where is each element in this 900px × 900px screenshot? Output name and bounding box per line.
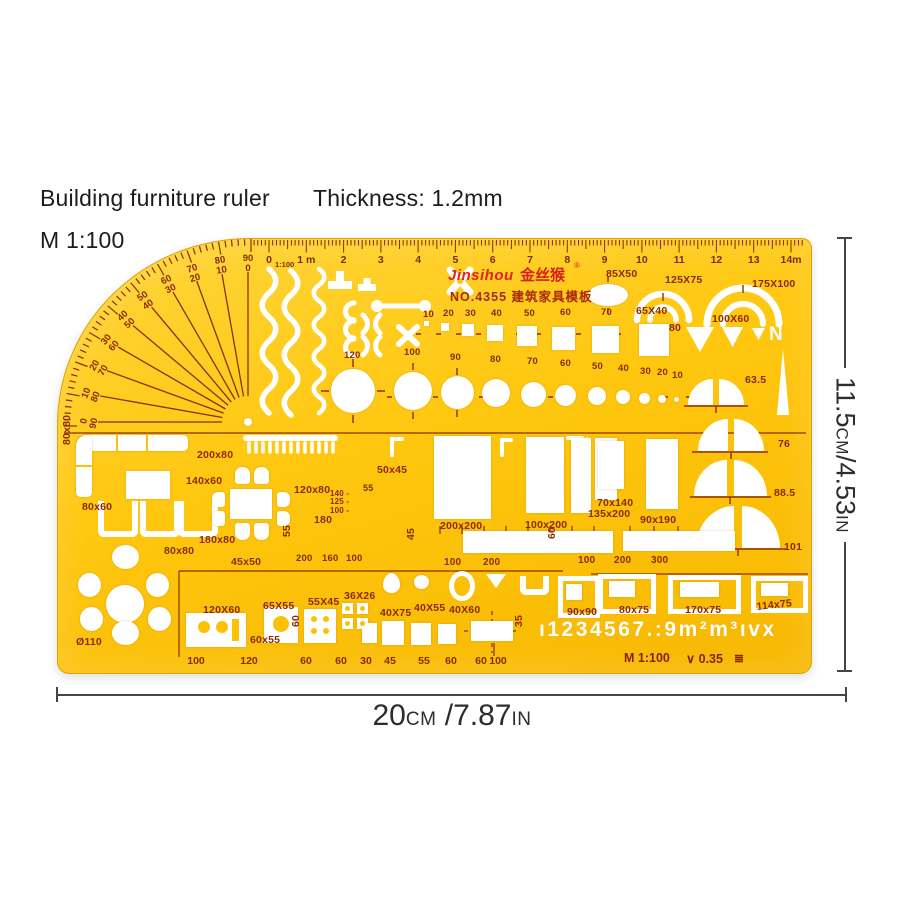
size-label: 135x200 bbox=[588, 509, 630, 520]
size-label: 200 bbox=[296, 554, 312, 564]
size-label: 70 bbox=[527, 357, 538, 367]
height-value: 11.5 bbox=[831, 377, 861, 428]
size-label: 50 bbox=[592, 362, 603, 372]
template-cutout bbox=[277, 492, 290, 507]
size-label: 30 bbox=[465, 309, 476, 319]
template-cutout bbox=[212, 492, 225, 507]
template-cutout bbox=[438, 624, 456, 644]
template-cutout bbox=[434, 436, 491, 519]
size-label: 300 bbox=[651, 556, 668, 566]
bottom-scale-number: 100 bbox=[187, 656, 205, 667]
size-label: 70 bbox=[601, 308, 612, 318]
template-hole-detail bbox=[323, 628, 329, 634]
size-label: 55 bbox=[282, 525, 293, 537]
template-cutout bbox=[463, 531, 613, 553]
bottom-scale-number: 60 bbox=[335, 656, 347, 667]
size-label: 30 bbox=[640, 367, 651, 377]
template-hole-detail bbox=[360, 606, 365, 611]
model-number: NO.4355 建筑家具模板 bbox=[450, 286, 593, 305]
template-cutout bbox=[441, 376, 474, 409]
template-cutout bbox=[254, 467, 269, 484]
size-label: 40X75 bbox=[380, 608, 411, 619]
template-cutout bbox=[126, 471, 170, 499]
template-cutout bbox=[76, 435, 188, 451]
product-title: Building furniture ruler bbox=[40, 185, 270, 212]
size-label: 88.5 bbox=[774, 488, 795, 499]
size-label: 200 bbox=[483, 558, 500, 568]
size-label: 175X100 bbox=[752, 279, 795, 290]
size-label: 63.5 bbox=[745, 375, 766, 386]
width-dimension-label: 20cm /7.87in bbox=[373, 699, 532, 733]
size-label: 50x45 bbox=[377, 465, 407, 476]
template-hole-detail bbox=[76, 465, 92, 467]
template-hole-detail bbox=[273, 616, 289, 632]
stencil-characters: ı1234567.:9m²m³ıvx bbox=[539, 618, 777, 642]
template-cutout bbox=[106, 585, 144, 623]
height-dimension-label: 11.5cm/4.53in bbox=[830, 377, 861, 533]
ruler-number: 5 bbox=[453, 255, 459, 266]
template-cutout bbox=[639, 393, 650, 404]
size-label: 100 bbox=[404, 348, 420, 358]
template-cutout bbox=[623, 531, 735, 551]
template-cutout bbox=[441, 323, 449, 331]
ruler-number: 3 bbox=[378, 255, 384, 266]
bottom-scale-number: 45 bbox=[384, 656, 396, 667]
template-hole-detail bbox=[345, 606, 350, 611]
template-cutout bbox=[235, 467, 250, 484]
template-cutout bbox=[520, 576, 549, 595]
template-cutout bbox=[616, 390, 630, 404]
size-label: 20 bbox=[443, 309, 454, 319]
template-cutout bbox=[212, 511, 225, 526]
size-label: 60 bbox=[547, 527, 558, 539]
height-dim-cap-bottom bbox=[837, 670, 852, 672]
size-label: 100 bbox=[346, 554, 362, 564]
size-label: 125X75 bbox=[665, 275, 702, 286]
ruler-number: 11 bbox=[674, 255, 685, 266]
ruler-ratio: 1:100 bbox=[275, 260, 294, 269]
size-label: 60 bbox=[560, 359, 571, 369]
bottom-scale-number: 55 bbox=[418, 656, 430, 667]
bottom-scale-number: 60 bbox=[445, 656, 457, 667]
product-photo: Building furniture ruler Thickness: 1.2m… bbox=[0, 0, 900, 900]
template-hole-detail bbox=[232, 619, 239, 641]
size-label: 200x200 bbox=[440, 521, 482, 532]
size-label: 55 bbox=[363, 484, 373, 493]
size-label: 125 - bbox=[330, 498, 349, 506]
template-cutout bbox=[487, 325, 503, 341]
template-cutout bbox=[521, 382, 546, 407]
template-cutout bbox=[658, 395, 666, 403]
ruler-number: 13 bbox=[748, 255, 760, 266]
size-label: 90 bbox=[450, 353, 461, 363]
size-label: 55X45 bbox=[308, 597, 339, 608]
size-label: 65X40 bbox=[636, 306, 667, 317]
template-cutout bbox=[639, 324, 669, 356]
template-cutout bbox=[588, 284, 628, 306]
size-label: 60x55 bbox=[250, 635, 280, 646]
template-hole-detail bbox=[360, 621, 365, 626]
template-cutout bbox=[331, 369, 375, 413]
template-cutout bbox=[78, 573, 101, 597]
template-cutout bbox=[552, 327, 575, 350]
size-label: 80x80 bbox=[62, 415, 73, 445]
size-label: 101 bbox=[784, 542, 802, 553]
template-cutout bbox=[80, 607, 103, 631]
template-cutout bbox=[449, 571, 475, 601]
template-cutout bbox=[588, 387, 606, 405]
template-cutout bbox=[146, 573, 169, 597]
size-label: 40 bbox=[491, 309, 502, 319]
size-label: 85X50 bbox=[606, 269, 637, 280]
template-cutout bbox=[112, 545, 139, 569]
size-label: 80x80 bbox=[164, 546, 194, 557]
width-value: 20 bbox=[373, 699, 406, 732]
template-cutout bbox=[277, 511, 290, 526]
template-cutout bbox=[112, 621, 139, 645]
template-cutout bbox=[555, 385, 576, 406]
template-cutout bbox=[414, 575, 429, 589]
size-label: 200x80 bbox=[197, 450, 233, 461]
template-hole-detail bbox=[146, 435, 148, 451]
pen-width-mark: ∨ 0.35 bbox=[686, 651, 723, 666]
template-cutout bbox=[526, 437, 564, 513]
template-cutout bbox=[609, 581, 635, 597]
width-dimension-line bbox=[57, 694, 846, 696]
template-cutout bbox=[462, 324, 474, 336]
protractor-degree-pair: 900 bbox=[237, 254, 259, 275]
template-cutout bbox=[482, 379, 510, 407]
template-cutout bbox=[394, 372, 432, 410]
thickness-label: Thickness: 1.2mm bbox=[313, 185, 503, 212]
bottom-scale-number: 120 bbox=[240, 656, 258, 667]
size-label: 80 bbox=[490, 355, 501, 365]
width-dim-cap-left bbox=[56, 687, 58, 702]
ruler-number: 10 bbox=[636, 255, 648, 266]
height-value-in: /4.53 bbox=[831, 455, 861, 515]
size-label: 120 bbox=[344, 351, 360, 361]
bottom-scale-number: 100 bbox=[489, 656, 507, 667]
template-cutout bbox=[471, 621, 513, 641]
size-label: 100 bbox=[578, 556, 595, 566]
bottom-scale-number: 60 bbox=[475, 656, 487, 667]
template-cutout bbox=[362, 623, 377, 643]
template-hole-detail bbox=[116, 435, 118, 451]
template-cutout bbox=[411, 623, 431, 645]
ruler-number: 1 m bbox=[297, 255, 315, 266]
size-label: 65X55 bbox=[263, 601, 294, 612]
template-hole-detail bbox=[345, 621, 350, 626]
template-cutout bbox=[680, 582, 719, 597]
template-cutout bbox=[140, 501, 180, 537]
size-label: 80x60 bbox=[82, 502, 112, 513]
template-hole-detail bbox=[323, 616, 329, 622]
protractor-degree-pair: 8010 bbox=[208, 255, 233, 279]
size-label: 36X26 bbox=[344, 591, 375, 602]
size-label: 76 bbox=[778, 439, 790, 450]
size-label: 100 - bbox=[330, 507, 349, 515]
template-cutout bbox=[148, 607, 171, 631]
width-unit-in: in bbox=[512, 709, 532, 730]
size-label: 40X55 bbox=[414, 603, 445, 614]
size-label: 120X60 bbox=[203, 605, 240, 616]
template-cutout bbox=[566, 584, 582, 600]
size-label: 60 bbox=[291, 615, 302, 627]
height-dim-cap-top bbox=[837, 237, 852, 239]
ruler-number: 6 bbox=[490, 255, 496, 266]
size-label: 120x80 bbox=[294, 485, 330, 496]
size-label: 200 bbox=[614, 556, 631, 566]
size-label: 100 bbox=[444, 558, 461, 568]
template-cutout bbox=[235, 523, 250, 540]
size-label: 45x50 bbox=[231, 557, 261, 568]
size-label: 70x140 bbox=[597, 498, 633, 509]
size-label: 180 bbox=[314, 515, 332, 526]
template-cutout bbox=[761, 583, 788, 596]
north-letter: N bbox=[769, 324, 783, 346]
template-cutout bbox=[517, 326, 537, 346]
width-unit: cm bbox=[406, 709, 437, 730]
bottom-scale-number: 60 bbox=[300, 656, 312, 667]
height-unit-in: in bbox=[833, 515, 852, 533]
size-label: 80x75 bbox=[619, 605, 649, 616]
paper-icon: ≣ bbox=[734, 651, 744, 665]
template-cutout bbox=[424, 321, 429, 326]
size-label: 40 bbox=[618, 364, 629, 374]
ruler-number: 2 bbox=[341, 255, 347, 266]
template-hole-detail bbox=[311, 628, 317, 634]
size-label: 35 bbox=[514, 615, 525, 627]
brand-name-cn: 金丝猴 bbox=[520, 264, 565, 285]
registered-mark: ® bbox=[574, 261, 580, 270]
height-dimension-line-bottom bbox=[844, 542, 846, 672]
template-cutout bbox=[383, 573, 400, 593]
size-label: 60 bbox=[560, 308, 571, 318]
height-unit: cm bbox=[833, 428, 852, 455]
height-dimension-line-top bbox=[844, 238, 846, 368]
size-label: 10 bbox=[672, 371, 683, 381]
bottom-scale-number: 30 bbox=[360, 656, 372, 667]
template-cutout bbox=[646, 439, 678, 509]
ruler-number: 8 bbox=[564, 255, 570, 266]
template-cutout bbox=[598, 441, 624, 489]
size-label: 90x90 bbox=[567, 607, 597, 618]
size-label: 160 bbox=[322, 554, 338, 564]
size-label: 50 bbox=[524, 309, 535, 319]
template-hole-detail bbox=[216, 621, 228, 633]
ruler-number: 0 bbox=[266, 255, 272, 266]
template-cutout bbox=[674, 397, 679, 402]
template-hole-detail bbox=[198, 621, 210, 633]
template-cutout bbox=[244, 418, 252, 426]
size-label: 40X60 bbox=[449, 605, 480, 616]
size-label: 170x75 bbox=[685, 605, 721, 616]
brand-name: Jinsihou bbox=[448, 267, 514, 284]
size-label: 20 bbox=[657, 368, 668, 378]
size-label: Ø110 bbox=[76, 637, 102, 648]
width-value-in: /7.87 bbox=[436, 699, 511, 732]
footer-scale: M 1:100 bbox=[624, 651, 670, 665]
ruler-number: 9 bbox=[602, 255, 608, 266]
template-cutout bbox=[304, 609, 336, 643]
ruler-number: 7 bbox=[527, 255, 533, 266]
template-cutout bbox=[382, 621, 404, 645]
size-label: 100X60 bbox=[712, 314, 749, 325]
width-dim-cap-right bbox=[845, 687, 847, 702]
ruler-number: 4 bbox=[415, 255, 421, 266]
ruler-number: 14m bbox=[780, 255, 801, 266]
size-label: 80 bbox=[669, 323, 681, 334]
template-cutout bbox=[571, 438, 591, 513]
template-cutout bbox=[592, 326, 619, 353]
template-cutout bbox=[254, 523, 269, 540]
template-hole-detail bbox=[311, 616, 317, 622]
size-label: 45 bbox=[406, 528, 417, 540]
size-label: 90x190 bbox=[640, 515, 676, 526]
drafting-template: Jinsihou 金丝猴 ® NO.4355 建筑家具模板 1:100 ı123… bbox=[57, 238, 812, 674]
size-label: 180x80 bbox=[199, 535, 235, 546]
template-cutout bbox=[230, 489, 272, 519]
size-label: 140x60 bbox=[186, 476, 222, 487]
ruler-number: 12 bbox=[711, 255, 723, 266]
size-label: 10 bbox=[423, 310, 434, 320]
